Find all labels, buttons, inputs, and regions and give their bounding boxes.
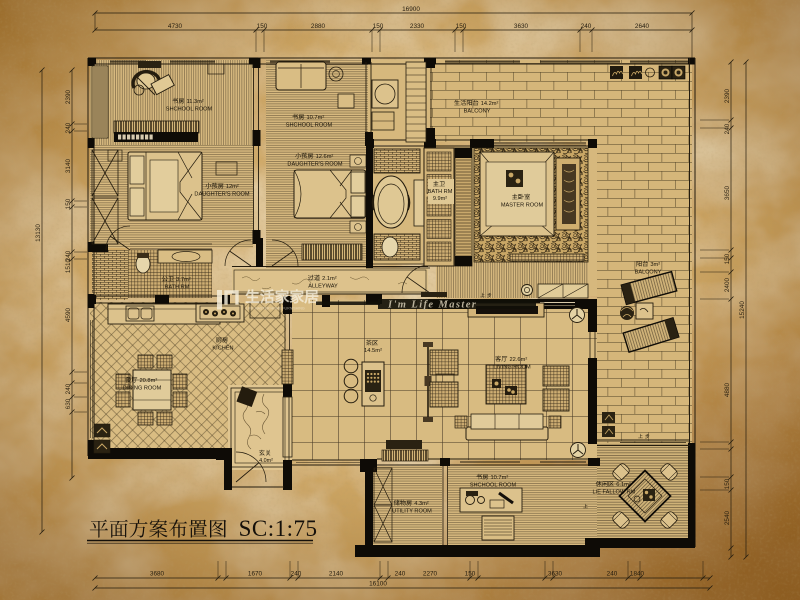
svg-text:10.7m²: 10.7m²	[491, 475, 509, 481]
svg-text:SHCHOOL ROOM: SHCHOOL ROOM	[286, 123, 333, 129]
svg-text:2.1m²: 2.1m²	[322, 276, 337, 282]
svg-text:2330: 2330	[410, 23, 425, 30]
svg-text:3630: 3630	[514, 23, 529, 30]
svg-text:SHCHOOL ROOM: SHCHOOL ROOM	[166, 107, 213, 113]
svg-text:14.5m²: 14.5m²	[364, 348, 382, 354]
svg-text:150: 150	[257, 23, 268, 30]
svg-text:LIFE MASTER HOME FURNISHING: LIFE MASTER HOME FURNISHING	[246, 307, 305, 311]
svg-text:UTILITY ROOM: UTILITY ROOM	[392, 509, 432, 515]
svg-text:150: 150	[724, 253, 731, 264]
svg-text:2140: 2140	[329, 571, 344, 578]
svg-text:150: 150	[456, 23, 467, 30]
svg-text:3630: 3630	[548, 571, 563, 578]
svg-text:6.1m²: 6.1m²	[616, 482, 631, 488]
svg-text:3140: 3140	[65, 158, 72, 173]
svg-text:4880: 4880	[724, 382, 731, 397]
svg-text:150: 150	[724, 478, 731, 489]
svg-text:4590: 4590	[65, 307, 72, 322]
svg-text:14.2m²: 14.2m²	[481, 101, 499, 107]
svg-text:150: 150	[465, 571, 476, 578]
svg-text:150: 150	[65, 198, 72, 209]
svg-text:630: 630	[65, 398, 72, 409]
svg-text:11.3m²: 11.3m²	[187, 99, 204, 105]
svg-text:KICHEN: KICHEN	[212, 346, 233, 352]
svg-text:BATH RM: BATH RM	[165, 285, 190, 291]
svg-text:2390: 2390	[65, 89, 72, 104]
svg-text:240: 240	[607, 571, 618, 578]
svg-text:DINING ROOM: DINING ROOM	[123, 386, 162, 392]
svg-text:10.7m²: 10.7m²	[307, 115, 325, 121]
svg-text:9.9m²: 9.9m²	[433, 196, 447, 202]
svg-text:240: 240	[65, 250, 72, 261]
svg-text:3680: 3680	[150, 571, 165, 578]
svg-text:DAUGHTER'S ROOM: DAUGHTER'S ROOM	[287, 162, 342, 168]
svg-text:2390: 2390	[724, 88, 731, 103]
svg-text:13130: 13130	[35, 224, 42, 242]
svg-text:SHCHOOL ROOM: SHCHOOL ROOM	[470, 483, 517, 489]
svg-text:MASTER ROOM: MASTER ROOM	[501, 203, 544, 209]
svg-text:BALCONY: BALCONY	[635, 270, 662, 276]
svg-text:4730: 4730	[168, 23, 183, 30]
svg-text:SC:1:75: SC:1:75	[239, 516, 318, 541]
svg-text:12.6m²: 12.6m²	[316, 154, 334, 160]
svg-text:1840: 1840	[630, 571, 645, 578]
svg-text:15240: 15240	[739, 301, 746, 319]
svg-text:3.7m²: 3.7m²	[176, 277, 191, 283]
svg-text:2880: 2880	[311, 23, 326, 30]
svg-text:3m²: 3m²	[650, 262, 660, 268]
svg-text:150: 150	[373, 23, 384, 30]
svg-text:ALLEYWAY: ALLEYWAY	[308, 284, 338, 290]
svg-text:16900: 16900	[402, 6, 420, 13]
svg-text:2540: 2540	[724, 510, 731, 525]
svg-text:4.0m²: 4.0m²	[259, 458, 273, 464]
svg-text:DAUGHTER'S ROOM: DAUGHTER'S ROOM	[194, 192, 249, 198]
svg-text:16100: 16100	[369, 581, 387, 588]
svg-text:2640: 2640	[635, 23, 650, 30]
svg-text:240: 240	[291, 571, 302, 578]
svg-text:240: 240	[581, 23, 592, 30]
svg-text:4.3m²: 4.3m²	[414, 501, 429, 507]
svg-text:3650: 3650	[724, 185, 731, 200]
svg-text:I'm Life Master: I'm Life Master	[387, 300, 477, 311]
svg-text:12m²: 12m²	[226, 184, 239, 190]
svg-text:22.6m²: 22.6m²	[510, 357, 528, 363]
svg-text:240: 240	[65, 383, 72, 394]
svg-text:2270: 2270	[423, 571, 438, 578]
svg-text:LIE FALLOW RM: LIE FALLOW RM	[593, 490, 636, 496]
svg-text:20.8m²: 20.8m²	[140, 378, 158, 384]
svg-text:1670: 1670	[248, 571, 263, 578]
svg-text:BATH RM: BATH RM	[428, 189, 453, 195]
svg-text:240: 240	[395, 571, 406, 578]
svg-text:2400: 2400	[724, 277, 731, 292]
svg-text:LIVING ROOM: LIVING ROOM	[493, 365, 531, 371]
svg-text:BALCONY: BALCONY	[464, 109, 491, 115]
svg-text:240: 240	[724, 123, 731, 134]
svg-text:240: 240	[65, 122, 72, 133]
